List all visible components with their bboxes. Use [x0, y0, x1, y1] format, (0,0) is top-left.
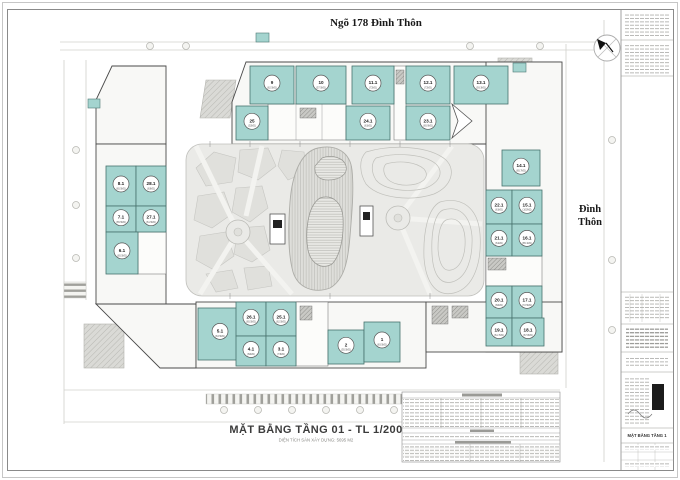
unit-number: 25.1: [277, 314, 286, 319]
unit-15.1: 15.1(103M2): [512, 190, 542, 224]
unit-area: (93.3M2): [476, 87, 486, 90]
unit-1: 1(83.5M2): [364, 322, 400, 362]
unit-number: 21.1: [495, 235, 504, 240]
unit-area: (62.5M2): [276, 321, 286, 324]
unit-area: (103M2): [523, 209, 532, 212]
unit-14.1: 14.1(65.7M2): [502, 150, 540, 186]
unit-2: 2(55.5M2): [328, 330, 364, 364]
unit-area: (61M2): [364, 125, 372, 128]
unit-number: 22.1: [495, 202, 504, 207]
unit-area: (61.5M2): [146, 221, 156, 224]
unit-number: 27.1: [147, 215, 156, 220]
unit-23.1: 23.1(65.9M2): [406, 106, 450, 140]
unit-area: (65.5M2): [116, 221, 126, 224]
unit-area: (61.7M2): [494, 334, 504, 337]
unit-area: (63M2): [147, 187, 155, 190]
unit-27.1: 27.1(61.5M2): [136, 206, 166, 232]
unit-number: 26.1: [247, 314, 256, 319]
unit-area: (73M2): [277, 353, 285, 356]
title-block: MẶT BẰNG TẦNG 1: [621, 14, 674, 470]
unit-number: 9: [271, 80, 274, 85]
unit-28.1: 28.1(63M2): [136, 166, 166, 206]
unit-3.1: 3.1(73M2): [266, 336, 296, 366]
unit-number: 1: [381, 337, 384, 342]
unit-number: 24.1: [364, 118, 373, 123]
unit-25.1: 25.1(62.5M2): [266, 302, 296, 336]
unit-area: (52M2): [248, 125, 256, 128]
street-label-top: Ngõ 178 Đình Thôn: [330, 17, 422, 29]
unit-number: 18.1: [524, 328, 533, 333]
unit-16.1: 16.1(85.1M2): [512, 224, 542, 256]
unit-area: (67.8M2): [523, 334, 533, 337]
unit-4.1: 4.1(60M2): [236, 336, 266, 366]
unit-area: (65.9M2): [423, 125, 433, 128]
unit-area: (65.5M2): [246, 321, 256, 324]
crosswalk-left: [64, 282, 86, 298]
crosswalk-bottom: [206, 394, 426, 404]
unit-area: (57.5M2): [316, 87, 326, 90]
amphitheater: [307, 197, 343, 266]
unit-number: 20.1: [495, 297, 504, 302]
unit-number: 28.1: [147, 181, 156, 186]
unit-number: 7.1: [118, 215, 125, 220]
unit-area: (63.5M2): [215, 335, 225, 338]
unit-area: (60M2): [495, 304, 503, 307]
unit-21.1: 21.1(61M2): [486, 224, 512, 256]
unit-area: (72.5M2): [522, 304, 532, 307]
unit-area: (83.5M2): [377, 343, 387, 346]
unit-number: 19.1: [495, 328, 504, 333]
unit-number: 2: [345, 342, 348, 347]
central-lawn: [289, 147, 353, 290]
plan-subtitle: DIỆN TÍCH SÀN XÂY DỰNG: 5695 M2: [279, 438, 354, 443]
unit-number: 25: [249, 118, 255, 123]
unit-area: (55.5M2): [341, 349, 351, 352]
unit-area: (85.1M2): [522, 242, 532, 245]
unit-number: 15.1: [523, 202, 532, 207]
unit-5.1: 5.1(63.5M2): [198, 308, 242, 360]
unit-18.1: 18.1(67.8M2): [512, 318, 544, 346]
unit-number: 4.1: [248, 347, 255, 352]
unit-area: (62.5M2): [267, 87, 277, 90]
unit-number: 10: [318, 80, 324, 85]
unit-12.1: 12.1(72M2): [406, 66, 450, 104]
unit-number: 3.1: [278, 347, 285, 352]
unit-schedule-table: [402, 392, 560, 462]
unit-number: 23.1: [424, 118, 433, 123]
unit-number: 6.1: [119, 248, 126, 253]
unit-number: 11.1: [369, 80, 378, 85]
unit-number: 8.1: [118, 181, 125, 186]
unit-26.1: 26.1(65.5M2): [236, 302, 266, 336]
unit-20.1: 20.1(60M2): [486, 286, 512, 318]
unit-number: 12.1: [424, 80, 433, 85]
titleblock-drawing-name: MẶT BẰNG TẦNG 1: [627, 433, 667, 438]
drawing-sheet: 9(62.5M2)10(57.5M2)11.1(72M2)12.1(72M2)1…: [0, 0, 680, 480]
unit-number: 5.1: [217, 328, 224, 333]
plan-title: MẶT BẰNG TẦNG 01 - TL 1/200: [229, 423, 402, 436]
unit-11.1: 11.1(72M2): [352, 66, 394, 104]
stamp-logo: [652, 384, 664, 410]
north-arrow-icon: [594, 35, 620, 61]
street-label-right-line1: Đình: [579, 204, 601, 215]
unit-22.1: 22.1(61M2): [486, 190, 512, 224]
unit-number: 16.1: [523, 235, 532, 240]
unit-area: (61M2): [495, 242, 503, 245]
unit-area: (65.5M2): [116, 187, 126, 190]
unit-25: 25(52M2): [236, 106, 268, 140]
unit-area: (72M2): [369, 87, 377, 90]
unit-6.1: 6.1(65.5M2): [106, 232, 138, 274]
unit-17.1: 17.1(72.5M2): [512, 286, 542, 318]
unit-area: (60M2): [247, 353, 255, 356]
unit-number: 14.1: [517, 163, 526, 168]
unit-area: (72M2): [424, 87, 432, 90]
unit-area: (61M2): [495, 209, 503, 212]
unit-number: 13.1: [477, 80, 486, 85]
unit-area: (65.5M2): [117, 254, 127, 257]
unit-7.1: 7.1(65.5M2): [106, 206, 136, 232]
street-label-right-line2: Thôn: [578, 217, 602, 228]
unit-number: 17.1: [523, 297, 532, 302]
unit-9: 9(62.5M2): [250, 66, 294, 104]
unit-13.1: 13.1(93.3M2): [454, 66, 508, 104]
unit-area: (65.7M2): [516, 170, 526, 173]
unit-24.1: 24.1(61M2): [346, 106, 390, 140]
floor-plan-canvas: 9(62.5M2)10(57.5M2)11.1(72M2)12.1(72M2)1…: [0, 0, 680, 480]
unit-8.1: 8.1(65.5M2): [106, 166, 136, 206]
unit-19.1: 19.1(61.7M2): [486, 318, 512, 346]
unit-10: 10(57.5M2): [296, 66, 346, 104]
